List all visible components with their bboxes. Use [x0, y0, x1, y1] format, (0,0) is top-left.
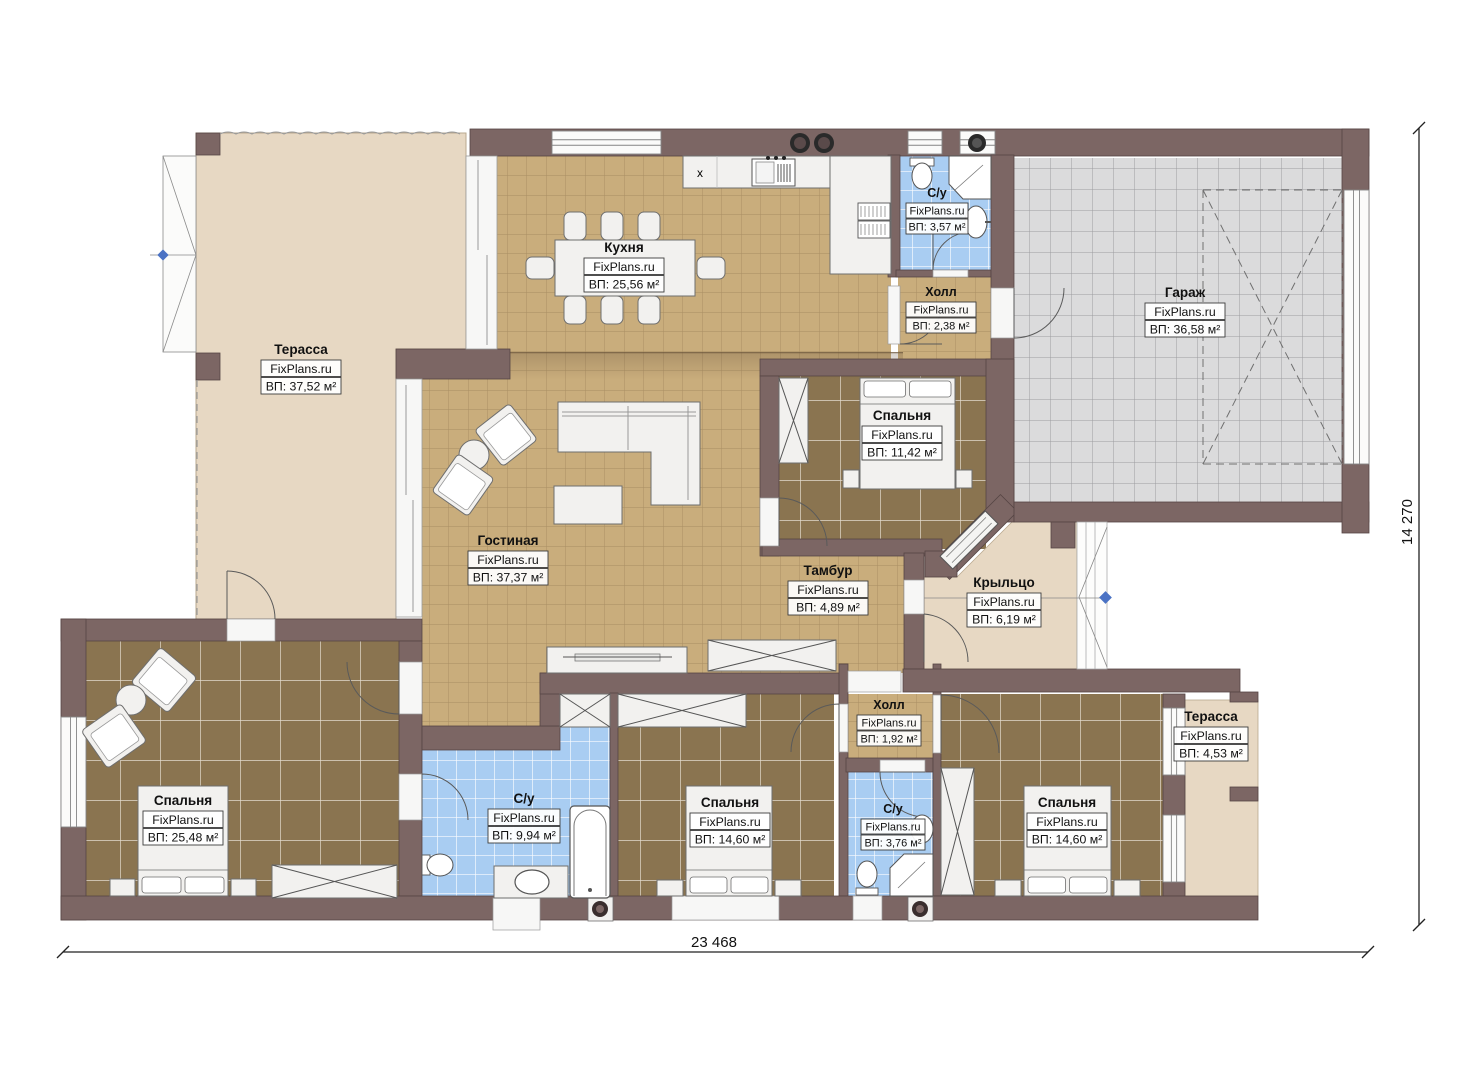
svg-text:Гараж: Гараж	[1165, 285, 1206, 300]
svg-text:С/у: С/у	[883, 802, 903, 816]
svg-text:Крыльцо: Крыльцо	[973, 575, 1034, 590]
svg-text:23 468: 23 468	[691, 934, 737, 951]
svg-text:С/у: С/у	[927, 186, 947, 200]
svg-text:14 270: 14 270	[1399, 499, 1416, 545]
svg-text:FixPlans.ru: FixPlans.ru	[1036, 815, 1098, 829]
svg-text:FixPlans.ru: FixPlans.ru	[909, 206, 964, 218]
svg-text:С/у: С/у	[513, 791, 535, 806]
svg-text:Терасса: Терасса	[274, 342, 328, 357]
svg-text:ВП: 36,58 м²: ВП: 36,58 м²	[1150, 323, 1221, 337]
svg-text:ВП: 25,48 м²: ВП: 25,48 м²	[148, 831, 219, 845]
svg-text:Спальня: Спальня	[154, 793, 212, 808]
svg-text:Терасса: Терасса	[1184, 709, 1238, 724]
svg-text:FixPlans.ru: FixPlans.ru	[797, 583, 859, 597]
svg-text:ВП: 3,76 м²: ВП: 3,76 м²	[864, 838, 921, 850]
svg-text:ВП: 9,94 м²: ВП: 9,94 м²	[492, 829, 556, 843]
svg-text:ВП: 14,60 м²: ВП: 14,60 м²	[695, 833, 766, 847]
svg-text:FixPlans.ru: FixPlans.ru	[861, 718, 916, 730]
svg-text:FixPlans.ru: FixPlans.ru	[270, 362, 332, 376]
svg-text:ВП: 6,19 м²: ВП: 6,19 м²	[972, 613, 1036, 627]
svg-text:ВП: 4,53 м²: ВП: 4,53 м²	[1179, 747, 1243, 761]
svg-text:ВП: 4,89 м²: ВП: 4,89 м²	[796, 601, 860, 615]
svg-text:ВП: 1,92 м²: ВП: 1,92 м²	[860, 734, 917, 746]
svg-text:ВП: 14,60 м²: ВП: 14,60 м²	[1032, 833, 1103, 847]
svg-text:FixPlans.ru: FixPlans.ru	[477, 553, 539, 567]
svg-text:FixPlans.ru: FixPlans.ru	[593, 260, 655, 274]
svg-text:Холл: Холл	[925, 285, 956, 299]
svg-text:FixPlans.ru: FixPlans.ru	[973, 595, 1035, 609]
svg-text:Спальня: Спальня	[873, 408, 931, 423]
svg-text:ВП: 2,38 м²: ВП: 2,38 м²	[912, 321, 969, 333]
svg-text:ВП: 3,57 м²: ВП: 3,57 м²	[908, 222, 965, 234]
svg-text:FixPlans.ru: FixPlans.ru	[913, 305, 968, 317]
svg-text:FixPlans.ru: FixPlans.ru	[493, 811, 555, 825]
svg-text:ВП: 25,56 м²: ВП: 25,56 м²	[589, 278, 660, 292]
svg-text:Спальня: Спальня	[701, 795, 759, 810]
svg-text:Гостиная: Гостиная	[477, 533, 538, 548]
svg-text:ВП: 37,52 м²: ВП: 37,52 м²	[266, 380, 337, 394]
svg-text:ВП: 11,42 м²: ВП: 11,42 м²	[867, 446, 937, 460]
svg-text:FixPlans.ru: FixPlans.ru	[871, 428, 933, 442]
svg-text:Спальня: Спальня	[1038, 795, 1096, 810]
svg-text:FixPlans.ru: FixPlans.ru	[699, 815, 761, 829]
svg-text:FixPlans.ru: FixPlans.ru	[1180, 729, 1242, 743]
svg-text:FixPlans.ru: FixPlans.ru	[1154, 305, 1216, 319]
svg-text:Холл: Холл	[873, 698, 904, 712]
svg-text:FixPlans.ru: FixPlans.ru	[865, 822, 920, 834]
svg-text:x: x	[697, 166, 703, 180]
svg-text:ВП: 37,37 м²: ВП: 37,37 м²	[473, 571, 544, 585]
svg-text:Кухня: Кухня	[604, 240, 643, 255]
svg-text:Тамбур: Тамбур	[804, 563, 853, 578]
svg-text:FixPlans.ru: FixPlans.ru	[152, 813, 214, 827]
